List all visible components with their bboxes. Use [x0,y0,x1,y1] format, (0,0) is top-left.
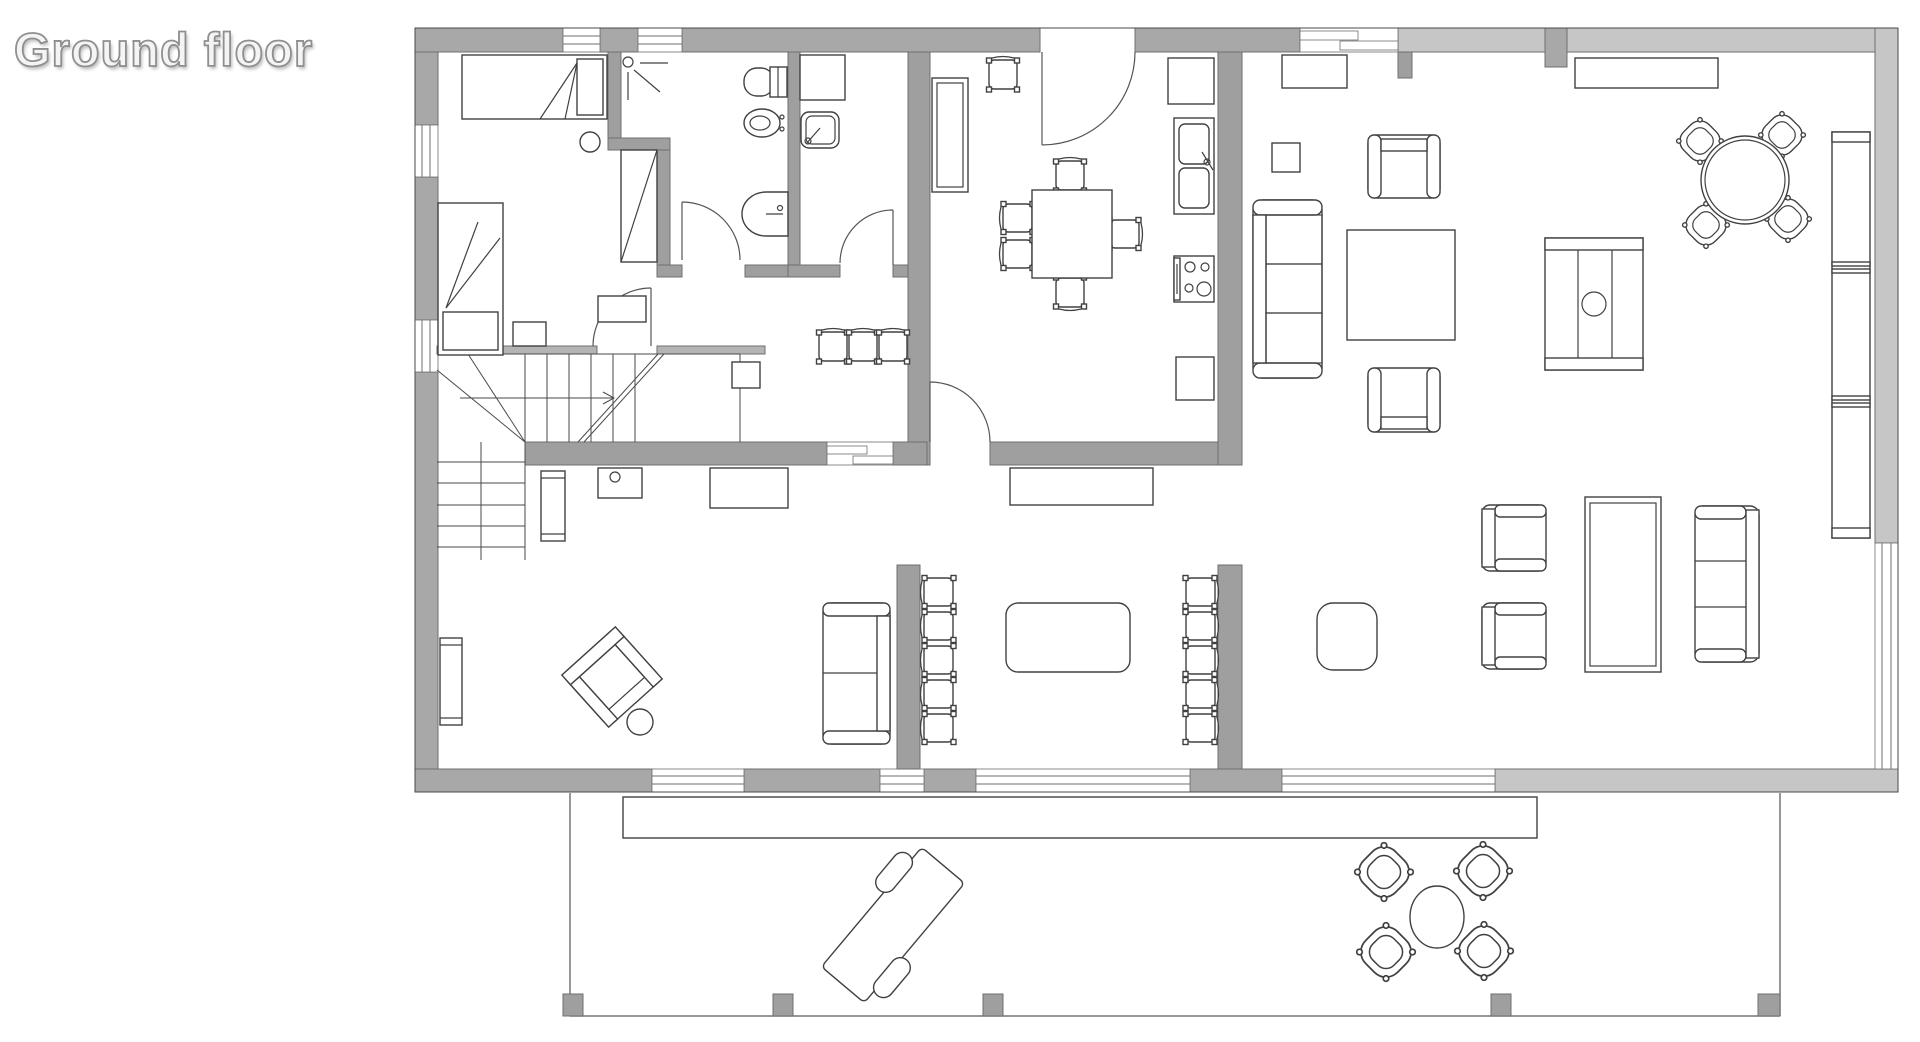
armchair [1368,368,1440,432]
terrace-dining-set [1352,839,1516,984]
floor-plan-page: Ground floor [0,0,1920,1042]
chair [1000,238,1036,271]
chair [1054,158,1087,194]
cabinet [541,471,565,541]
top-wall [600,28,638,52]
bathroom-fixtures [621,57,788,262]
wall-shelf [1575,58,1718,88]
dining-partition-right [1218,565,1242,769]
shower-cabin [621,150,657,262]
bedroom-furniture [438,55,607,355]
stool [580,132,600,152]
kitchen-south-wall [990,442,1242,465]
top-wall [1135,28,1300,52]
kitchen-table [1032,190,1112,278]
window [652,769,744,792]
wc-cabinet [800,55,845,100]
bidet [744,109,784,137]
chair [817,329,850,365]
shower-wall [657,150,670,277]
kitchen-entry-door [1042,52,1135,145]
kitchen-furniture [932,57,1214,401]
chair [1054,275,1087,311]
sitting-group [1482,497,1759,672]
kitchen-west-wall [908,52,930,465]
wc-door [840,210,893,265]
floor-plan-drawing [0,0,1920,1042]
nightstand [513,322,546,346]
hall-south-wall [525,442,827,465]
window [415,125,438,177]
chair [921,576,957,609]
tv-cabinet [1545,238,1643,370]
coffee-table [1347,230,1455,340]
armchair [1368,135,1440,198]
tall-cabinet [932,78,968,192]
wc-washbasin [801,112,839,148]
bathroom-south-wall [745,265,788,277]
long-table [1585,497,1661,672]
chair [921,610,957,643]
kitchen-inner-door [930,382,990,442]
bottom-wall [924,769,976,792]
window [638,28,682,52]
wc-south-wall [788,265,840,277]
chair [1183,576,1219,609]
chair [847,329,880,365]
dining-room-furniture [823,468,1219,745]
sliding-door [827,442,893,465]
round-table [1701,136,1789,224]
washbasin [742,192,788,236]
armchair [1482,603,1546,669]
bottom-wall [415,769,652,792]
ottoman [627,709,653,735]
right-wall [1875,28,1898,543]
chair [1183,678,1219,711]
chair [1183,712,1219,745]
left-wall [415,372,438,769]
wc-fixtures [800,55,845,148]
bottom-wall-light [1495,769,1898,792]
shower-wall [608,138,670,150]
bathroom-wc-wall [788,52,800,277]
kitchen-living-wall [1218,52,1242,465]
base-cabinet [1176,357,1214,400]
kitchen-sink [1174,118,1214,214]
oval-table [1006,603,1130,672]
round-chair [1354,920,1418,984]
deck-step [623,797,1537,838]
lower-flight [437,442,525,560]
top-wall [682,28,1040,52]
sideboard [1010,468,1153,505]
post [563,994,583,1016]
bottom-wall [744,769,880,792]
round-chair [1352,840,1416,904]
window [976,769,1190,792]
round-chair [1451,839,1515,903]
chair [877,329,910,365]
round-dining-set [1675,110,1814,251]
left-wall [415,52,438,125]
toilet [744,67,787,97]
fridge [1168,58,1214,104]
window [880,769,924,792]
window [415,320,438,372]
post [1491,994,1511,1016]
hall-wall [657,346,765,354]
bedroom-bathroom-wall [608,52,621,140]
dining-partition-left [897,565,920,769]
radiator [732,362,760,388]
sofa-3-seat [1253,200,1322,378]
bench [1317,603,1377,670]
sofa-2-seat [823,603,890,744]
bottom-wall [1190,769,1282,792]
hall-bench [598,296,646,322]
window [563,28,600,52]
chair [921,644,957,677]
terrace [563,793,1780,1016]
sun-lounger [810,838,976,1013]
bathroom-door [682,202,740,260]
desk [710,468,788,508]
post [773,994,793,1016]
window-wall-glazing [1875,543,1898,769]
wc-south-wall [893,265,908,277]
sliding-window [1300,28,1398,52]
shower-head-icon [623,57,668,100]
wall-stub [1398,52,1412,78]
side-table [1272,143,1300,172]
armchair [1482,505,1546,571]
bookshelf [1832,132,1870,538]
bathroom-south-wall [657,265,682,277]
chair [1183,644,1219,677]
stove [1174,256,1214,302]
chair [1183,610,1219,643]
wall-stub [1545,28,1567,67]
chair [1000,202,1036,235]
top-wall [415,28,563,52]
chair [921,678,957,711]
post [983,994,1003,1016]
winder-line [437,370,525,442]
left-wall [415,177,438,320]
chair [987,57,1020,93]
top-wall-light [1398,28,1898,52]
round-table [1410,886,1464,948]
single-bed [462,55,607,119]
lamp-table [598,468,642,498]
wall-cabinet [440,638,462,725]
hall-south-wall [893,442,927,465]
sideboard [1282,55,1347,88]
chair [921,712,957,745]
single-bed-2 [438,203,503,355]
window [1282,769,1495,792]
living-room-furniture [1253,55,1870,672]
post [1758,994,1780,1016]
sofa-3-seat [1695,506,1759,662]
